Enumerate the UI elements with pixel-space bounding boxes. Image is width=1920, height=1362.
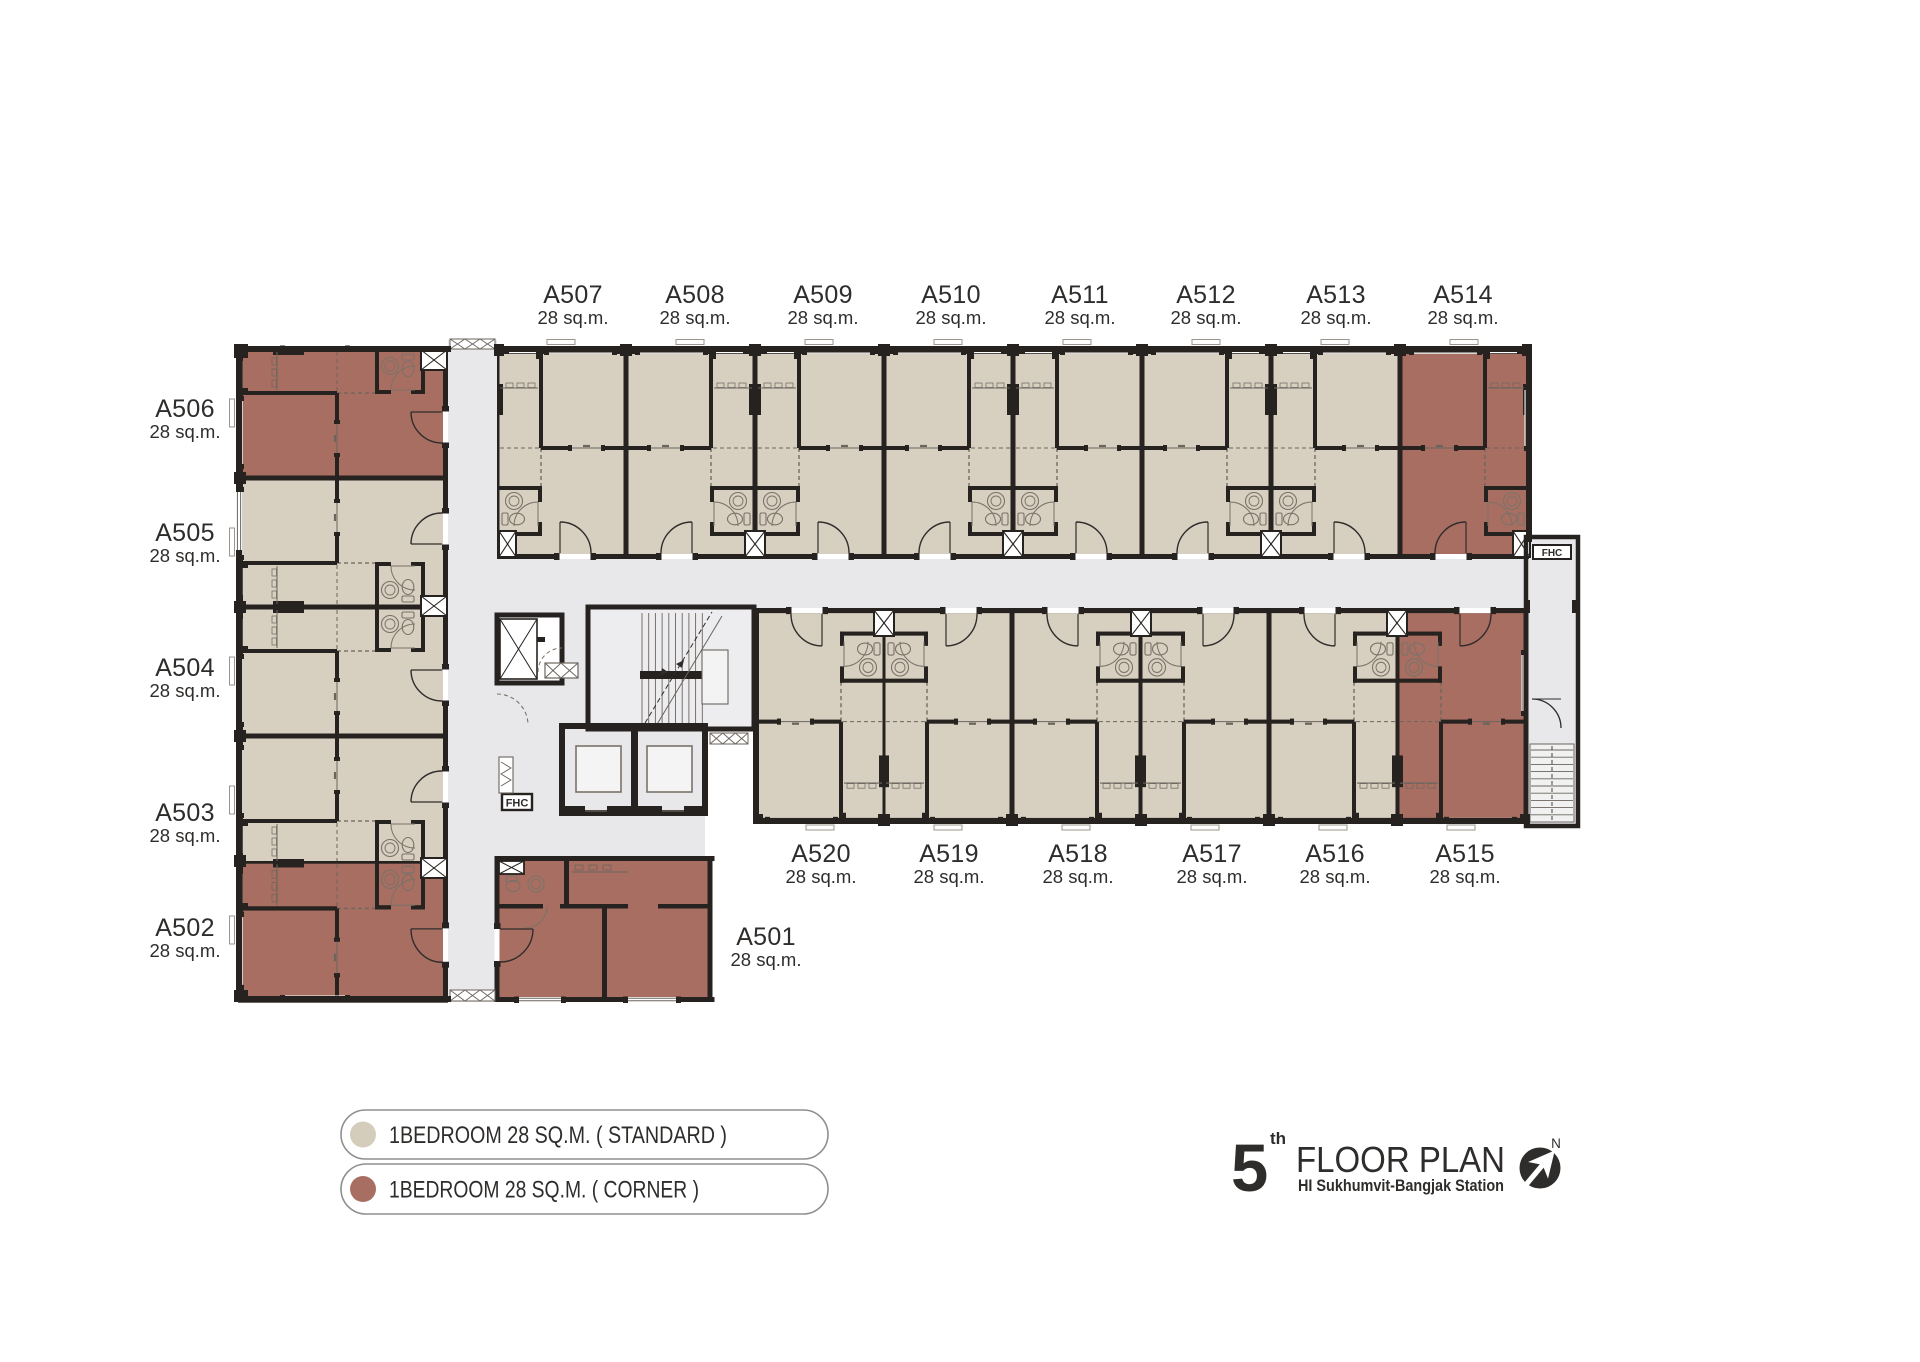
svg-text:A502: A502 (155, 914, 215, 942)
svg-text:A513: A513 (1306, 281, 1366, 309)
svg-text:th: th (1270, 1129, 1286, 1148)
svg-text:A507: A507 (543, 281, 603, 309)
svg-text:A503: A503 (155, 799, 215, 827)
svg-text:1BEDROOM 28 SQ.M. ( CORNER ): 1BEDROOM 28 SQ.M. ( CORNER ) (389, 1177, 699, 1204)
svg-text:A520: A520 (791, 840, 851, 868)
svg-text:28 sq.m.: 28 sq.m. (150, 545, 221, 566)
svg-text:A508: A508 (665, 281, 725, 309)
svg-text:28 sq.m.: 28 sq.m. (786, 866, 857, 887)
svg-text:28 sq.m.: 28 sq.m. (538, 307, 609, 328)
svg-text:28 sq.m.: 28 sq.m. (1428, 307, 1499, 328)
svg-text:A501: A501 (736, 923, 796, 951)
svg-text:28 sq.m.: 28 sq.m. (1430, 866, 1501, 887)
svg-text:28 sq.m.: 28 sq.m. (788, 307, 859, 328)
svg-text:28 sq.m.: 28 sq.m. (150, 825, 221, 846)
svg-text:A516: A516 (1305, 840, 1365, 868)
svg-text:28 sq.m.: 28 sq.m. (914, 866, 985, 887)
svg-text:28 sq.m.: 28 sq.m. (1300, 866, 1371, 887)
svg-text:1BEDROOM 28 SQ.M. ( STANDARD ): 1BEDROOM 28 SQ.M. ( STANDARD ) (389, 1122, 727, 1149)
svg-text:A511: A511 (1051, 281, 1109, 309)
svg-text:28 sq.m.: 28 sq.m. (731, 949, 802, 970)
svg-text:A509: A509 (793, 281, 853, 309)
svg-text:28 sq.m.: 28 sq.m. (1301, 307, 1372, 328)
svg-text:FHC: FHC (1542, 548, 1563, 559)
svg-text:28 sq.m.: 28 sq.m. (150, 421, 221, 442)
svg-text:A512: A512 (1176, 281, 1236, 309)
svg-text:A518: A518 (1048, 840, 1108, 868)
svg-text:5: 5 (1231, 1131, 1268, 1206)
svg-text:A510: A510 (921, 281, 981, 309)
svg-text:28 sq.m.: 28 sq.m. (1177, 866, 1248, 887)
svg-text:A504: A504 (155, 654, 215, 682)
svg-text:28 sq.m.: 28 sq.m. (916, 307, 987, 328)
svg-text:28 sq.m.: 28 sq.m. (1045, 307, 1116, 328)
svg-text:A505: A505 (155, 519, 215, 547)
svg-text:28 sq.m.: 28 sq.m. (1171, 307, 1242, 328)
svg-text:28 sq.m.: 28 sq.m. (150, 940, 221, 961)
svg-text:A517: A517 (1182, 840, 1242, 868)
svg-text:A515: A515 (1435, 840, 1495, 868)
svg-text:A514: A514 (1433, 281, 1493, 309)
svg-text:A519: A519 (919, 840, 979, 868)
svg-text:28 sq.m.: 28 sq.m. (660, 307, 731, 328)
svg-text:28 sq.m.: 28 sq.m. (1043, 866, 1114, 887)
svg-text:N: N (1551, 1136, 1561, 1151)
svg-text:28 sq.m.: 28 sq.m. (150, 680, 221, 701)
svg-text:FLOOR PLAN: FLOOR PLAN (1296, 1139, 1505, 1180)
svg-text:HI Sukhumvit-Bangjak Station: HI Sukhumvit-Bangjak Station (1298, 1176, 1504, 1195)
svg-text:A506: A506 (155, 395, 215, 423)
svg-text:FHC: FHC (506, 798, 529, 810)
